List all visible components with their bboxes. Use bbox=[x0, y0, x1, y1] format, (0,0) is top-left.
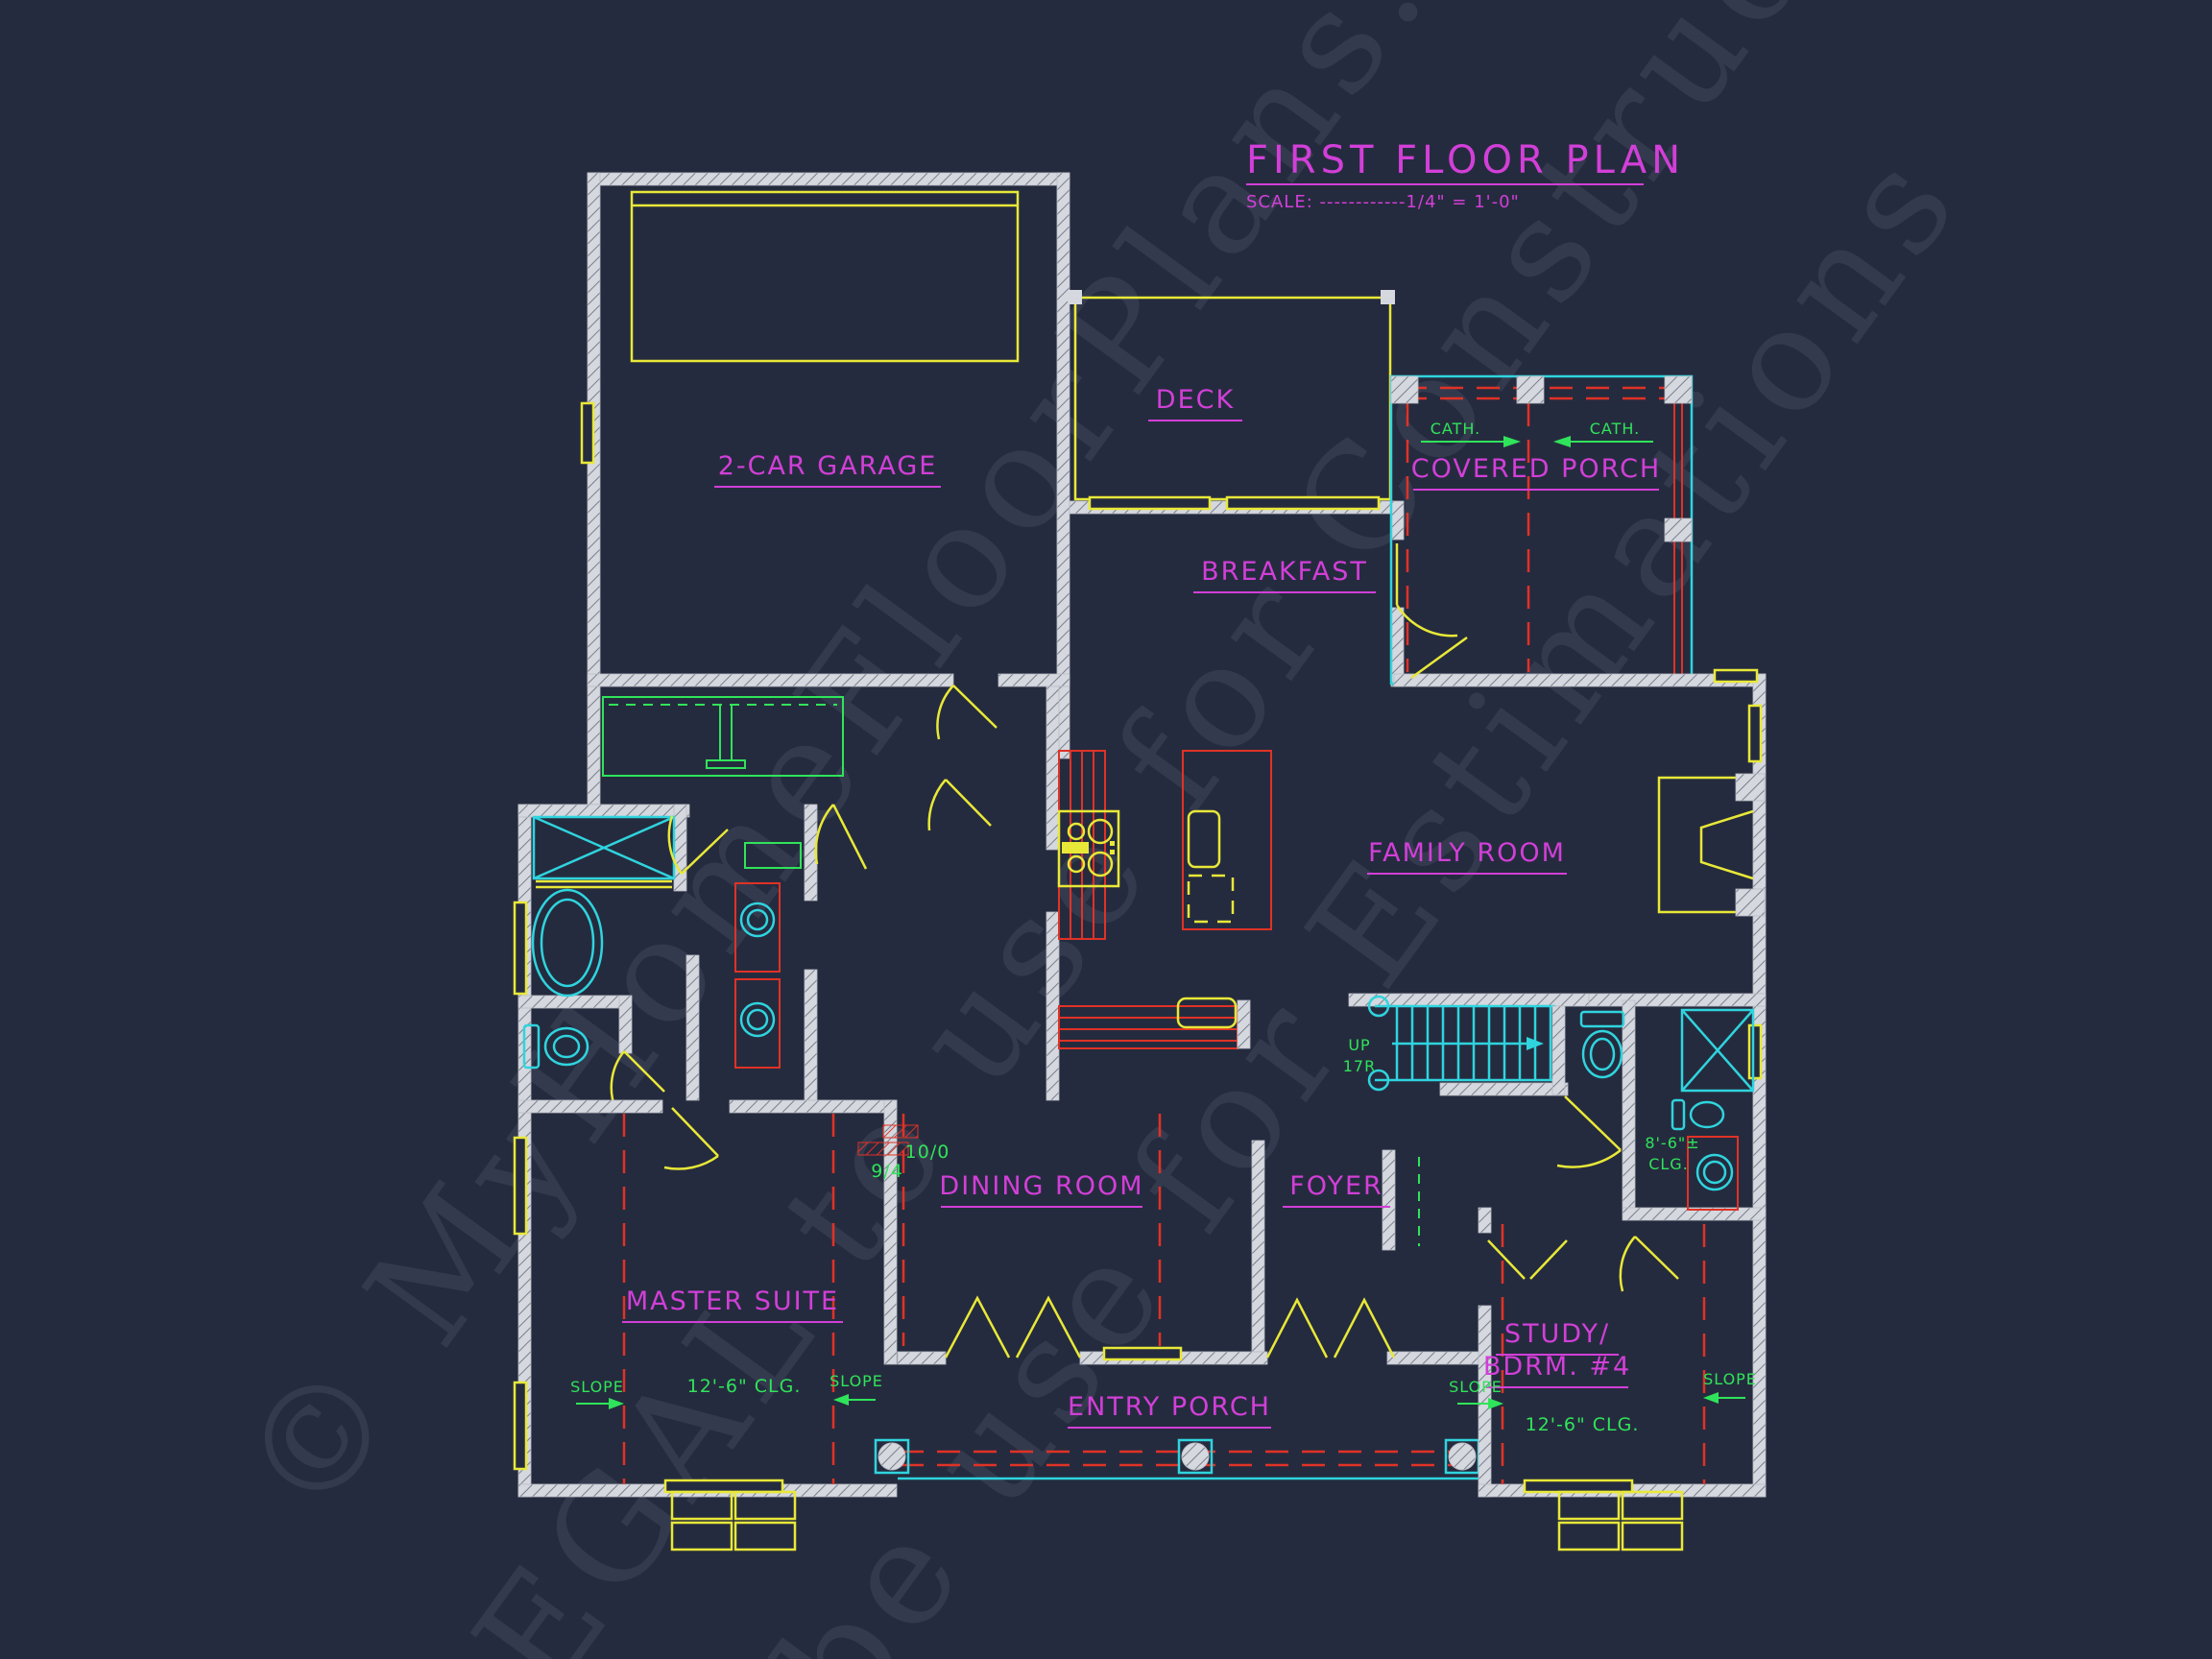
master-ceiling-label: 12'-6" CLG. bbox=[687, 1376, 802, 1397]
dishwasher bbox=[1189, 876, 1233, 922]
covered-porch-label: COVERED PORCH bbox=[1411, 454, 1661, 484]
stairs-risers-label: 17R bbox=[1343, 1057, 1376, 1075]
window bbox=[1104, 1348, 1181, 1359]
step-height-label: 10/0 bbox=[905, 1142, 950, 1163]
front-steps-right bbox=[1559, 1492, 1682, 1550]
double-door bbox=[1267, 1300, 1394, 1358]
slope-arrow-icon bbox=[833, 1394, 876, 1406]
window bbox=[515, 902, 526, 994]
slope-label: SLOPE bbox=[829, 1372, 883, 1390]
page-title: FIRST FLOOR PLAN bbox=[1246, 138, 1685, 182]
window bbox=[1749, 1025, 1761, 1078]
cath-label-left: CATH. bbox=[1431, 420, 1480, 438]
bath-ceiling-label: 8'-6"± bbox=[1645, 1134, 1699, 1152]
deck-label: DECK bbox=[1156, 385, 1235, 415]
porch-column bbox=[1446, 1440, 1479, 1473]
porch-column bbox=[1665, 376, 1692, 403]
window bbox=[582, 403, 593, 463]
step-hatch bbox=[883, 1125, 918, 1138]
toilet bbox=[1581, 1012, 1623, 1077]
porch-column bbox=[1665, 518, 1692, 541]
porch-column bbox=[1391, 376, 1418, 403]
breakfast-label: BREAKFAST bbox=[1201, 557, 1368, 587]
bath-2: 8'-6"± CLG. bbox=[1621, 1010, 1753, 1291]
porch-column bbox=[1179, 1440, 1212, 1473]
step-hatch bbox=[858, 1142, 908, 1155]
entry-porch-label: ENTRY PORCH bbox=[1068, 1392, 1271, 1422]
window bbox=[515, 1138, 526, 1234]
toilet bbox=[1672, 1100, 1723, 1129]
floor-plan-drawing: © MyHomeFloorPlans.com ILLEGAL to use fo… bbox=[0, 0, 2212, 1659]
porch-column bbox=[1517, 376, 1544, 403]
bath-1 bbox=[1552, 994, 1766, 1220]
door bbox=[1557, 1096, 1621, 1167]
garage-label: 2-CAR GARAGE bbox=[718, 451, 938, 481]
window bbox=[1090, 497, 1210, 509]
floor-plan-canvas: © MyHomeFloorPlans.com ILLEGAL to use fo… bbox=[0, 0, 2212, 1659]
slope-label: SLOPE bbox=[570, 1378, 624, 1396]
door bbox=[664, 1108, 718, 1169]
shower bbox=[1682, 1010, 1753, 1091]
stairs-up-label: UP bbox=[1348, 1036, 1370, 1054]
study-label-line1: STUDY/ bbox=[1504, 1319, 1610, 1349]
door bbox=[929, 780, 991, 830]
fireplace bbox=[1659, 774, 1765, 916]
window bbox=[665, 1480, 782, 1492]
slope-arrow-icon bbox=[1703, 1392, 1745, 1404]
door bbox=[1621, 1237, 1678, 1291]
dining-room-label: DINING ROOM bbox=[939, 1171, 1143, 1201]
double-door bbox=[1488, 1240, 1567, 1279]
cath-label-right: CATH. bbox=[1590, 420, 1640, 438]
step-height-label: 9/4 bbox=[871, 1161, 903, 1182]
window bbox=[515, 1382, 526, 1469]
foyer-label: FOYER bbox=[1289, 1171, 1383, 1201]
bath-ceiling-label-2: CLG. bbox=[1648, 1155, 1689, 1173]
study: STUDY/ BDRM. #4 12'-6" CLG. SLOPE SLOPE bbox=[1449, 1208, 1766, 1497]
window bbox=[1715, 670, 1757, 682]
window bbox=[1227, 497, 1379, 509]
sink bbox=[1697, 1155, 1732, 1190]
slope-label: SLOPE bbox=[1703, 1370, 1757, 1388]
slope-label: SLOPE bbox=[1449, 1378, 1503, 1396]
study-label-line2: BDRM. #4 bbox=[1483, 1352, 1631, 1382]
garage-door bbox=[632, 192, 1018, 361]
study-ceiling-label: 12'-6" CLG. bbox=[1526, 1414, 1640, 1435]
master-suite-label: MASTER SUITE bbox=[626, 1286, 839, 1316]
scale-label: SCALE: ------------1/4" = 1'-0" bbox=[1246, 192, 1520, 212]
window bbox=[1749, 706, 1761, 761]
window bbox=[1525, 1480, 1632, 1492]
family-room-label: FAMILY ROOM bbox=[1368, 838, 1566, 868]
